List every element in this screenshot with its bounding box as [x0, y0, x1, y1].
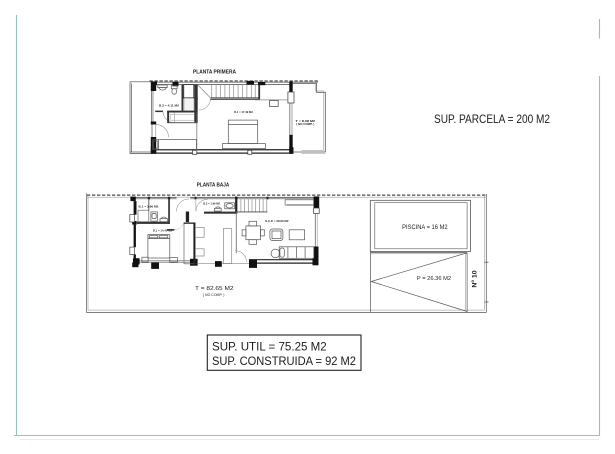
svg-text:SUP. UTIL = 75.25 M2: SUP. UTIL = 75.25 M2	[212, 340, 327, 354]
svg-text:S-C-E = 28.90 M2: S-C-E = 28.90 M2	[265, 219, 289, 223]
svg-text:PLANTA BAJA: PLANTA BAJA	[197, 182, 230, 188]
svg-text:T = 82.65 M2: T = 82.65 M2	[195, 286, 234, 292]
svg-text:B.2 = 4.11 M2: B.2 = 4.11 M2	[159, 104, 179, 108]
svg-text:P = 26.36 M2: P = 26.36 M2	[417, 276, 451, 282]
svg-text:SUP. CONSTRUIDA = 92 M2: SUP. CONSTRUIDA = 92 M2	[212, 354, 356, 368]
svg-text:PISCINA = 16 M2: PISCINA = 16 M2	[402, 225, 448, 231]
svg-text:( NO COMP. ): ( NO COMP. )	[296, 122, 314, 126]
svg-text:T = 8.08 M2: T = 8.08 M2	[296, 119, 316, 123]
svg-text:SUP. PARCELA = 200 M2: SUP. PARCELA = 200 M2	[434, 112, 550, 126]
svg-text:B.1 = 3.96 M2: B.1 = 3.96 M2	[139, 205, 159, 209]
svg-text:( NO COMP. ): ( NO COMP. )	[203, 293, 225, 297]
svg-text:PLANTA PRIMERA: PLANTA PRIMERA	[193, 70, 236, 76]
svg-text:D.1 = 17.49 M2: D.1 = 17.49 M2	[234, 110, 253, 114]
svg-text:Nº 10: Nº 10	[472, 270, 479, 287]
svg-text:B.2 = 1.96 M2: B.2 = 1.96 M2	[203, 202, 220, 206]
